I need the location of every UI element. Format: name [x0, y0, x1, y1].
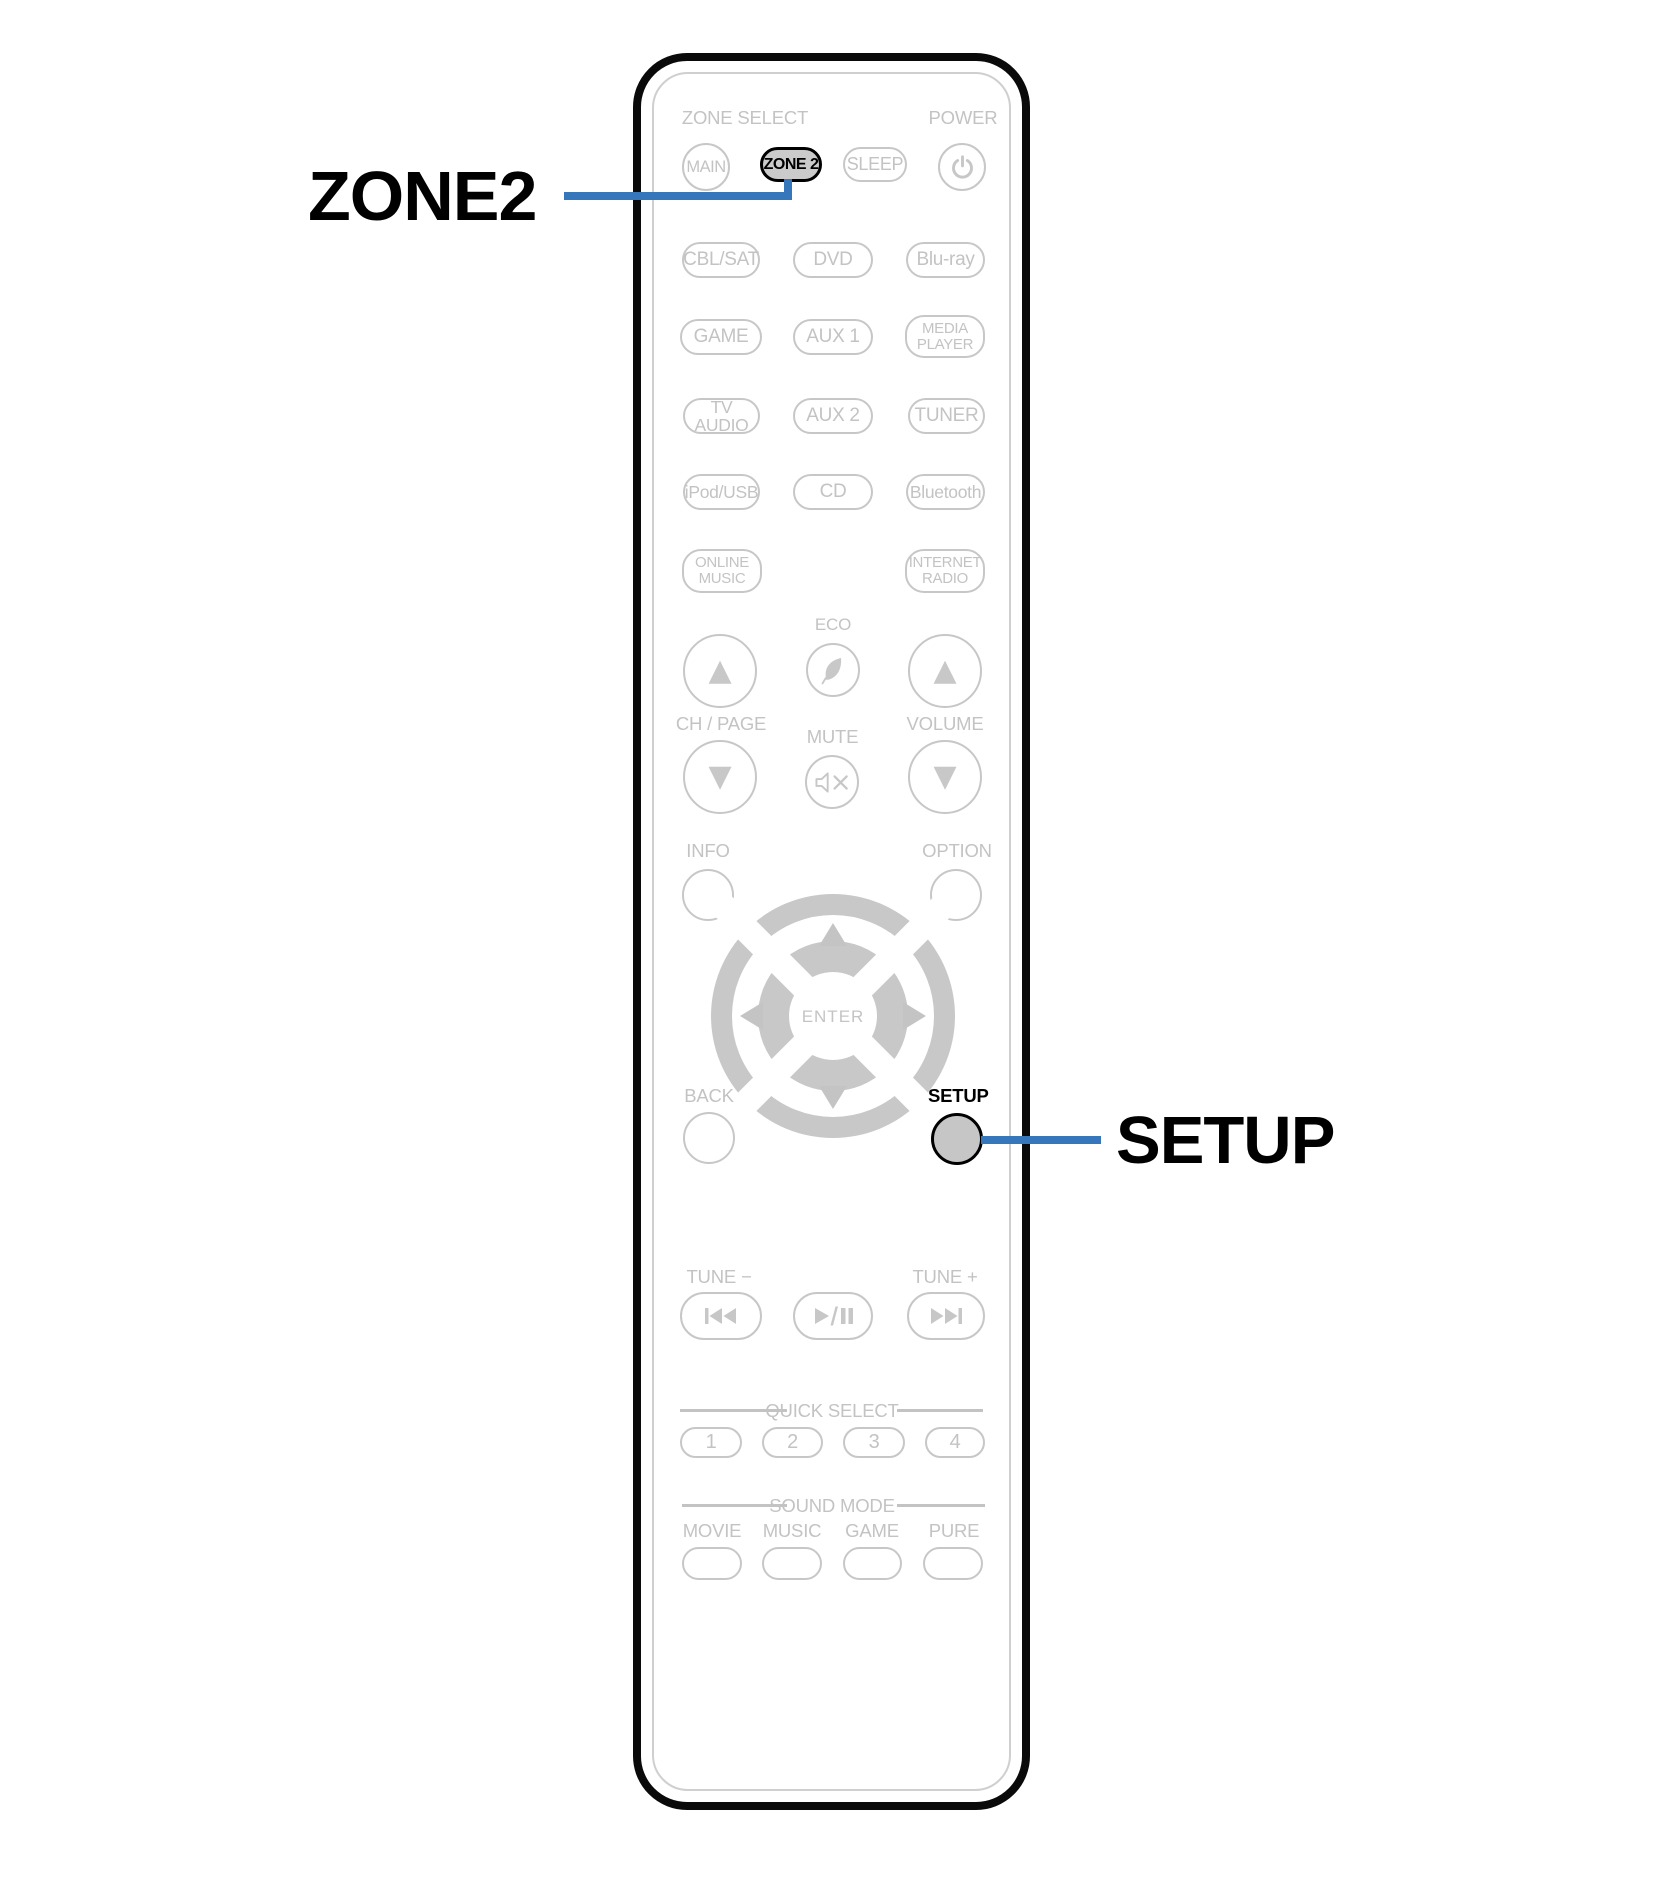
- eco-label: ECO: [803, 616, 863, 634]
- source-cbl-sat-button[interactable]: CBL/SAT: [682, 242, 760, 278]
- quick-select-1-button[interactable]: 1: [680, 1427, 742, 1458]
- source-tuner-button[interactable]: TUNER: [908, 398, 985, 434]
- source-bluetooth-button[interactable]: Bluetooth: [906, 474, 985, 510]
- music-label: MUSIC: [757, 1521, 827, 1540]
- play-pause-button[interactable]: [793, 1292, 873, 1340]
- sound-mode-music-button[interactable]: [762, 1547, 822, 1580]
- skip-back-button[interactable]: [680, 1292, 762, 1340]
- zone2-button[interactable]: ZONE 2: [760, 147, 822, 182]
- mute-label: MUTE: [800, 727, 865, 746]
- source-media-player-button[interactable]: MEDIA PLAYER: [905, 315, 985, 358]
- info-label: INFO: [680, 841, 736, 860]
- sound-mode-rule-right: [897, 1504, 985, 1507]
- mute-icon: [813, 769, 851, 796]
- source-bluray-button[interactable]: Blu-ray: [906, 242, 985, 278]
- setup-callout-line: [981, 1136, 1101, 1144]
- source-tv-audio-button[interactable]: TV AUDIO: [683, 398, 760, 434]
- power-icon: [949, 154, 976, 181]
- source-aux1-button[interactable]: AUX 1: [793, 319, 873, 355]
- channel-down-button[interactable]: ▼: [683, 740, 757, 814]
- main-zone-button[interactable]: MAIN: [682, 143, 730, 191]
- mute-button[interactable]: [805, 755, 859, 809]
- source-game-button[interactable]: GAME: [680, 319, 762, 355]
- quick-select-rule-right: [897, 1409, 983, 1412]
- down-triangle-icon: ▼: [708, 762, 731, 792]
- setup-button[interactable]: [931, 1113, 983, 1165]
- source-cd-button[interactable]: CD: [793, 474, 873, 510]
- play-pause-icon: [810, 1305, 856, 1327]
- quick-select-4-button[interactable]: 4: [925, 1427, 985, 1458]
- quick-select-3-button[interactable]: 3: [843, 1427, 905, 1458]
- sound-mode-rule-left: [682, 1504, 787, 1507]
- source-online-music-button[interactable]: ONLINE MUSIC: [682, 549, 762, 593]
- volume-down-button[interactable]: ▼: [908, 740, 982, 814]
- down-triangle-icon: ▼: [933, 762, 956, 792]
- zone-select-label: ZONE SELECT: [660, 108, 830, 127]
- sound-mode-pure-button[interactable]: [923, 1547, 983, 1580]
- game-label: GAME: [837, 1521, 907, 1540]
- channel-up-button[interactable]: ▲: [683, 634, 757, 708]
- quick-select-rule-left: [680, 1409, 787, 1412]
- zone2-callout-label: ZONE2: [308, 161, 536, 231]
- page: ZONE SELECT POWER MAIN ZONE 2 SLEEP CBL/…: [0, 0, 1665, 1878]
- up-triangle-icon: ▲: [708, 656, 731, 686]
- volume-label: VOLUME: [903, 714, 987, 733]
- sound-mode-movie-button[interactable]: [682, 1547, 742, 1580]
- tune-plus-label: TUNE +: [902, 1267, 988, 1286]
- back-button[interactable]: [683, 1112, 735, 1164]
- eco-leaf-icon: [813, 650, 853, 690]
- volume-up-button[interactable]: ▲: [908, 634, 982, 708]
- source-dvd-button[interactable]: DVD: [793, 242, 873, 278]
- zone2-callout-line-vertical: [784, 179, 792, 200]
- enter-button[interactable]: ENTER: [793, 1007, 873, 1027]
- sleep-button[interactable]: SLEEP: [843, 147, 907, 182]
- option-label: OPTION: [920, 841, 994, 860]
- up-triangle-icon: ▲: [933, 656, 956, 686]
- tune-minus-label: TUNE −: [676, 1267, 762, 1286]
- movie-label: MOVIE: [677, 1521, 747, 1540]
- skip-forward-button[interactable]: [907, 1292, 985, 1340]
- zone2-callout-line: [564, 192, 790, 200]
- power-label: POWER: [920, 108, 1006, 127]
- skip-forward-icon: [926, 1305, 966, 1327]
- setup-button-label: SETUP: [928, 1086, 986, 1105]
- sound-mode-game-button[interactable]: [843, 1547, 902, 1580]
- skip-back-icon: [701, 1305, 741, 1327]
- source-aux2-button[interactable]: AUX 2: [793, 398, 873, 434]
- quick-select-2-button[interactable]: 2: [762, 1427, 823, 1458]
- source-internet-radio-button[interactable]: INTERNET RADIO: [905, 549, 985, 593]
- power-button[interactable]: [938, 143, 986, 191]
- setup-callout-label: SETUP: [1116, 1107, 1334, 1174]
- source-ipod-usb-button[interactable]: iPod/USB: [683, 474, 760, 510]
- ch-page-label: CH / PAGE: [665, 714, 777, 733]
- pure-label: PURE: [919, 1521, 989, 1540]
- back-label: BACK: [680, 1086, 738, 1105]
- eco-button[interactable]: [806, 643, 860, 697]
